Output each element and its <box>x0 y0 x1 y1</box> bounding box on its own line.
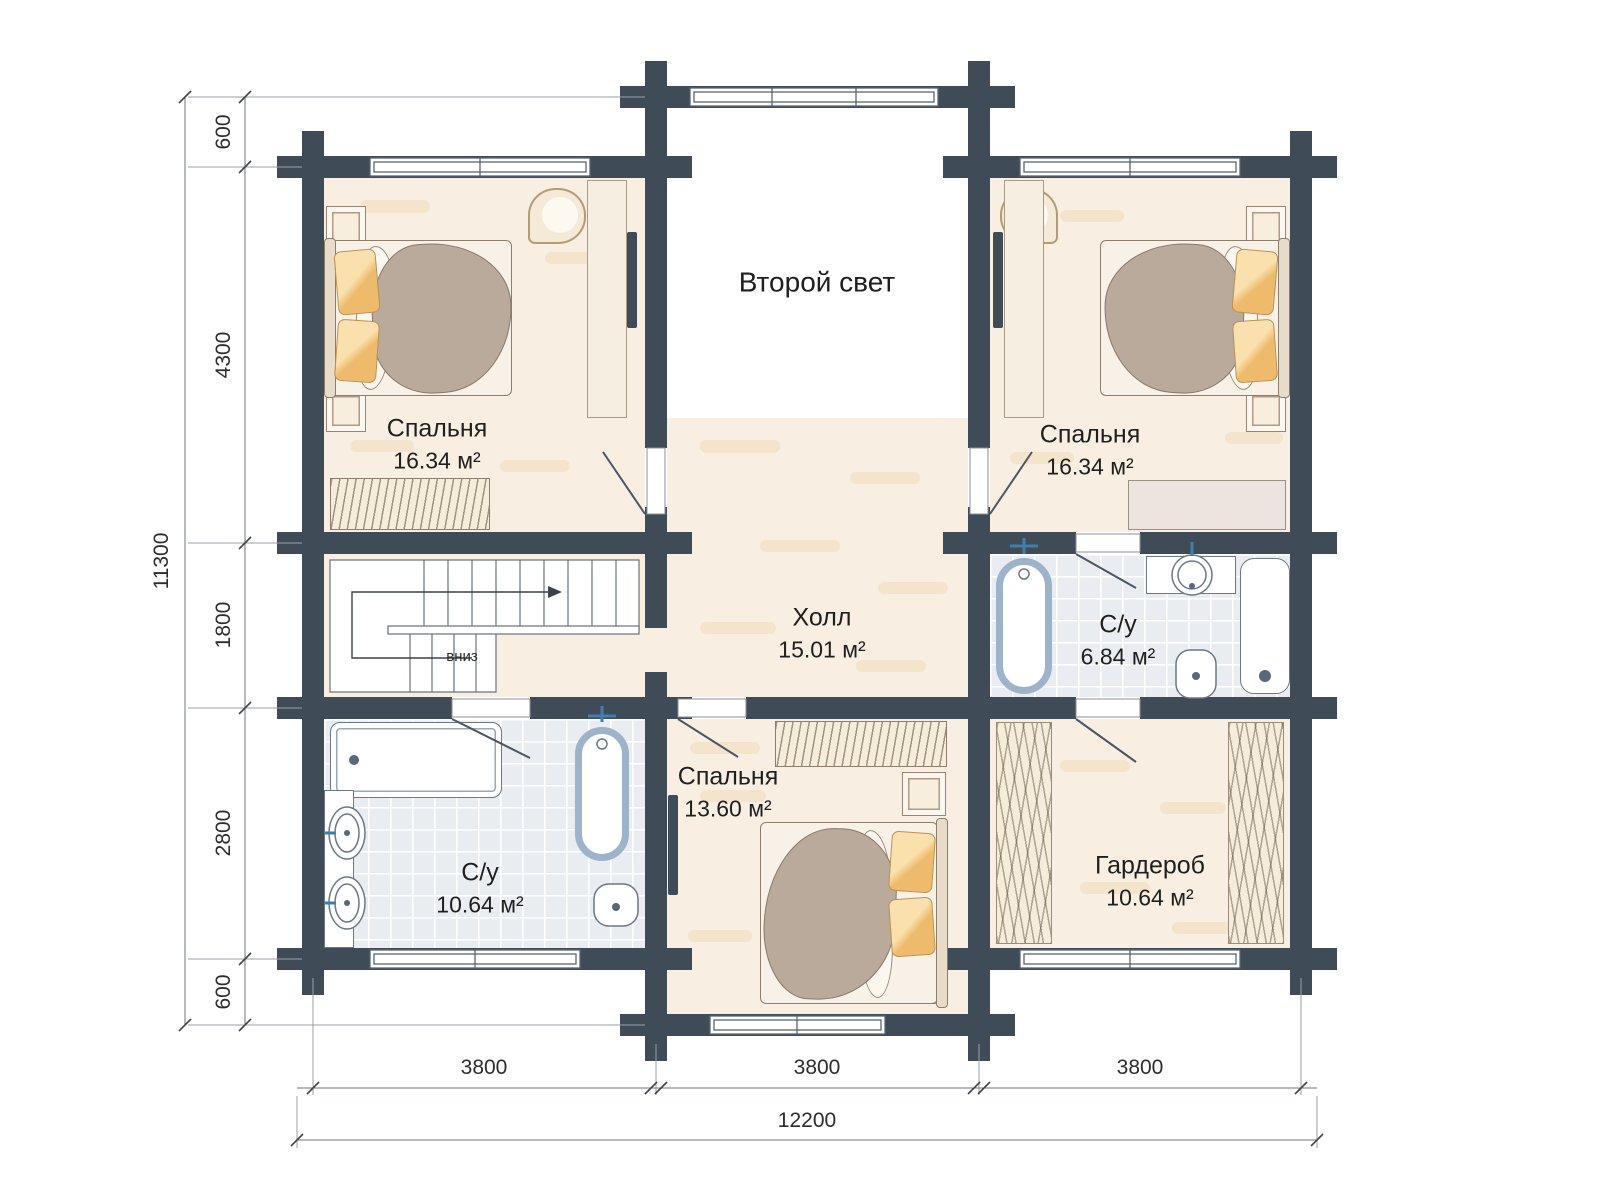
room-area: 16.34 м² <box>1040 451 1140 481</box>
dim-left-2: 4300 <box>212 332 236 379</box>
room-label-bedroom-top-right: Спальня 16.34 м² <box>1040 418 1140 481</box>
plank-strip <box>690 742 760 754</box>
wall <box>302 948 645 970</box>
plank-strip <box>700 622 776 634</box>
wall <box>645 86 667 448</box>
room-label-wardrobe: Гардероб 10.64 м² <box>1095 849 1205 912</box>
room-label-bedroom-top-left: Спальня 16.34 м² <box>387 412 487 475</box>
room-label-second-light: Второй свет <box>739 265 895 302</box>
nightstand <box>902 772 946 816</box>
plank-strip <box>760 540 840 552</box>
room-name: Спальня <box>1040 418 1140 451</box>
wall <box>1140 532 1312 554</box>
wall <box>530 697 678 719</box>
wall <box>968 514 990 1036</box>
room-name: Спальня <box>678 760 778 793</box>
wall <box>1290 156 1312 970</box>
dim-bottom-total: 12200 <box>778 1109 836 1133</box>
dim-left-4: 2800 <box>212 810 236 857</box>
room-area: 16.34 м² <box>387 445 487 475</box>
room-name: Спальня <box>387 412 487 445</box>
plank-strip <box>1172 922 1234 934</box>
plank-strip <box>1060 210 1124 222</box>
shower-tray <box>1240 558 1290 694</box>
freestanding-bathtub <box>575 727 629 861</box>
floor-stair-room <box>324 554 645 697</box>
room-name: С/у <box>1081 608 1156 641</box>
pillow <box>333 248 380 315</box>
dim-left-total: 11300 <box>150 533 174 590</box>
dim-left-3: 1800 <box>212 602 236 649</box>
wardrobe-cabinet <box>587 180 627 418</box>
room-label-bathroom-left: С/у 10.64 м² <box>436 856 523 919</box>
armchair-seat <box>542 197 578 233</box>
room-label-bathroom-right: С/у 6.84 м² <box>1081 608 1156 671</box>
pillow <box>334 319 380 384</box>
wardrobe-cabinet <box>1004 180 1044 418</box>
radiator <box>775 721 947 767</box>
room-area: 6.84 м² <box>1081 641 1156 671</box>
radiator <box>330 478 490 530</box>
plank-strip <box>700 440 780 453</box>
room-name: С/у <box>436 856 523 889</box>
room-name: Второй свет <box>739 265 895 302</box>
tv-panel <box>668 795 678 895</box>
plank-strip <box>360 200 430 213</box>
wall <box>302 697 452 719</box>
armchair <box>528 188 586 244</box>
pillow <box>888 897 936 958</box>
dim-bottom-1: 3800 <box>461 1056 508 1080</box>
wall <box>990 156 1312 178</box>
plank-strip <box>688 930 752 942</box>
wall <box>302 156 645 178</box>
log-end <box>645 672 667 697</box>
wall <box>968 86 990 448</box>
plank-strip <box>1225 432 1283 444</box>
dim-bottom-2: 3800 <box>794 1056 841 1080</box>
clothes-rail <box>996 722 1052 944</box>
dim-left-1: 600 <box>212 114 236 149</box>
floor-second-light <box>667 108 968 419</box>
room-label-hall: Холл 15.01 м² <box>778 601 865 664</box>
wall <box>645 86 990 108</box>
plank-strip <box>878 582 948 594</box>
room-area: 10.64 м² <box>436 889 523 919</box>
wall <box>645 1014 990 1036</box>
room-area: 13.60 м² <box>678 793 778 823</box>
room-name: Гардероб <box>1095 849 1205 882</box>
bathtub <box>330 722 502 798</box>
wall <box>990 948 1312 970</box>
wall <box>302 532 667 554</box>
room-area: 15.01 м² <box>778 634 865 664</box>
plank-strip <box>850 472 920 484</box>
wall <box>1140 697 1312 719</box>
dresser <box>1128 480 1286 530</box>
sink-counter <box>324 790 354 948</box>
bed-headboard <box>1278 238 1290 398</box>
wall <box>302 156 324 970</box>
plank-strip <box>1060 760 1130 772</box>
room-name: Холл <box>778 601 865 634</box>
room-label-bedroom-bottom: Спальня 13.60 м² <box>678 760 778 823</box>
room-area: 10.64 м² <box>1095 882 1205 912</box>
plank-strip <box>1160 802 1226 814</box>
plank-strip <box>856 660 926 672</box>
plank-strip <box>500 460 570 472</box>
wall <box>645 697 667 1036</box>
wall <box>968 532 1076 554</box>
pillow <box>1231 248 1278 315</box>
bed-headboard <box>936 818 948 1008</box>
tv-panel <box>627 232 637 328</box>
freestanding-bathtub <box>996 558 1052 694</box>
dim-left-5: 600 <box>212 974 236 1009</box>
tv-panel <box>993 232 1003 328</box>
clothes-rail <box>1228 722 1284 944</box>
pillow <box>1232 319 1278 384</box>
stairs-direction-label: вниз <box>446 647 478 667</box>
dim-bottom-3: 3800 <box>1117 1056 1164 1080</box>
wall <box>746 697 1076 719</box>
sink-counter <box>1146 556 1236 594</box>
pillow <box>888 831 936 894</box>
floor-plan: Второй свет Спальня 16.34 м² Спальня 16.… <box>0 0 1600 1200</box>
